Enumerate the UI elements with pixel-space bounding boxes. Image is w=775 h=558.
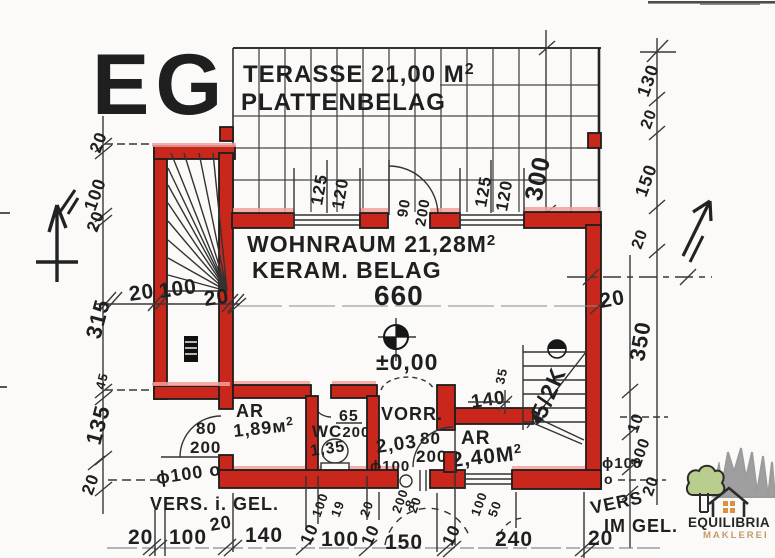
svg-text:20: 20	[208, 511, 233, 535]
svg-text:MAKLEREI: MAKLEREI	[703, 530, 769, 541]
svg-text:20: 20	[588, 527, 613, 550]
svg-text:EQUILIBRIA: EQUILIBRIA	[688, 515, 770, 530]
svg-text:EG: EG	[92, 37, 228, 133]
svg-text:20: 20	[598, 286, 627, 313]
svg-text:VERS. i. GEL.: VERS. i. GEL.	[150, 494, 279, 514]
svg-text:140: 140	[245, 524, 283, 547]
svg-text:90: 90	[394, 197, 414, 218]
svg-text:TERASSE 21,00 M2: TERASSE 21,00 M2	[243, 61, 475, 88]
svg-text:200: 200	[190, 438, 221, 457]
svg-text:100: 100	[321, 528, 359, 551]
svg-text:o: o	[604, 471, 614, 487]
svg-text:20: 20	[127, 280, 155, 306]
svg-text:80: 80	[420, 429, 441, 448]
svg-text:±0,00: ±0,00	[376, 349, 438, 375]
svg-text:240: 240	[495, 528, 533, 551]
svg-text:150: 150	[385, 531, 423, 554]
svg-text:PLATTENBELAG: PLATTENBELAG	[241, 89, 446, 116]
svg-text:VORR.: VORR.	[381, 404, 443, 424]
svg-text:80: 80	[196, 419, 217, 438]
svg-text:IM GEL.: IM GEL.	[604, 516, 678, 536]
svg-text:WOHNRAUM 21,28M2: WOHNRAUM 21,28M2	[247, 231, 496, 257]
svg-text:200: 200	[416, 447, 447, 466]
svg-text:660: 660	[374, 280, 424, 311]
svg-text:20: 20	[202, 285, 230, 311]
svg-text:100: 100	[169, 526, 207, 549]
svg-text:20: 20	[128, 526, 153, 549]
